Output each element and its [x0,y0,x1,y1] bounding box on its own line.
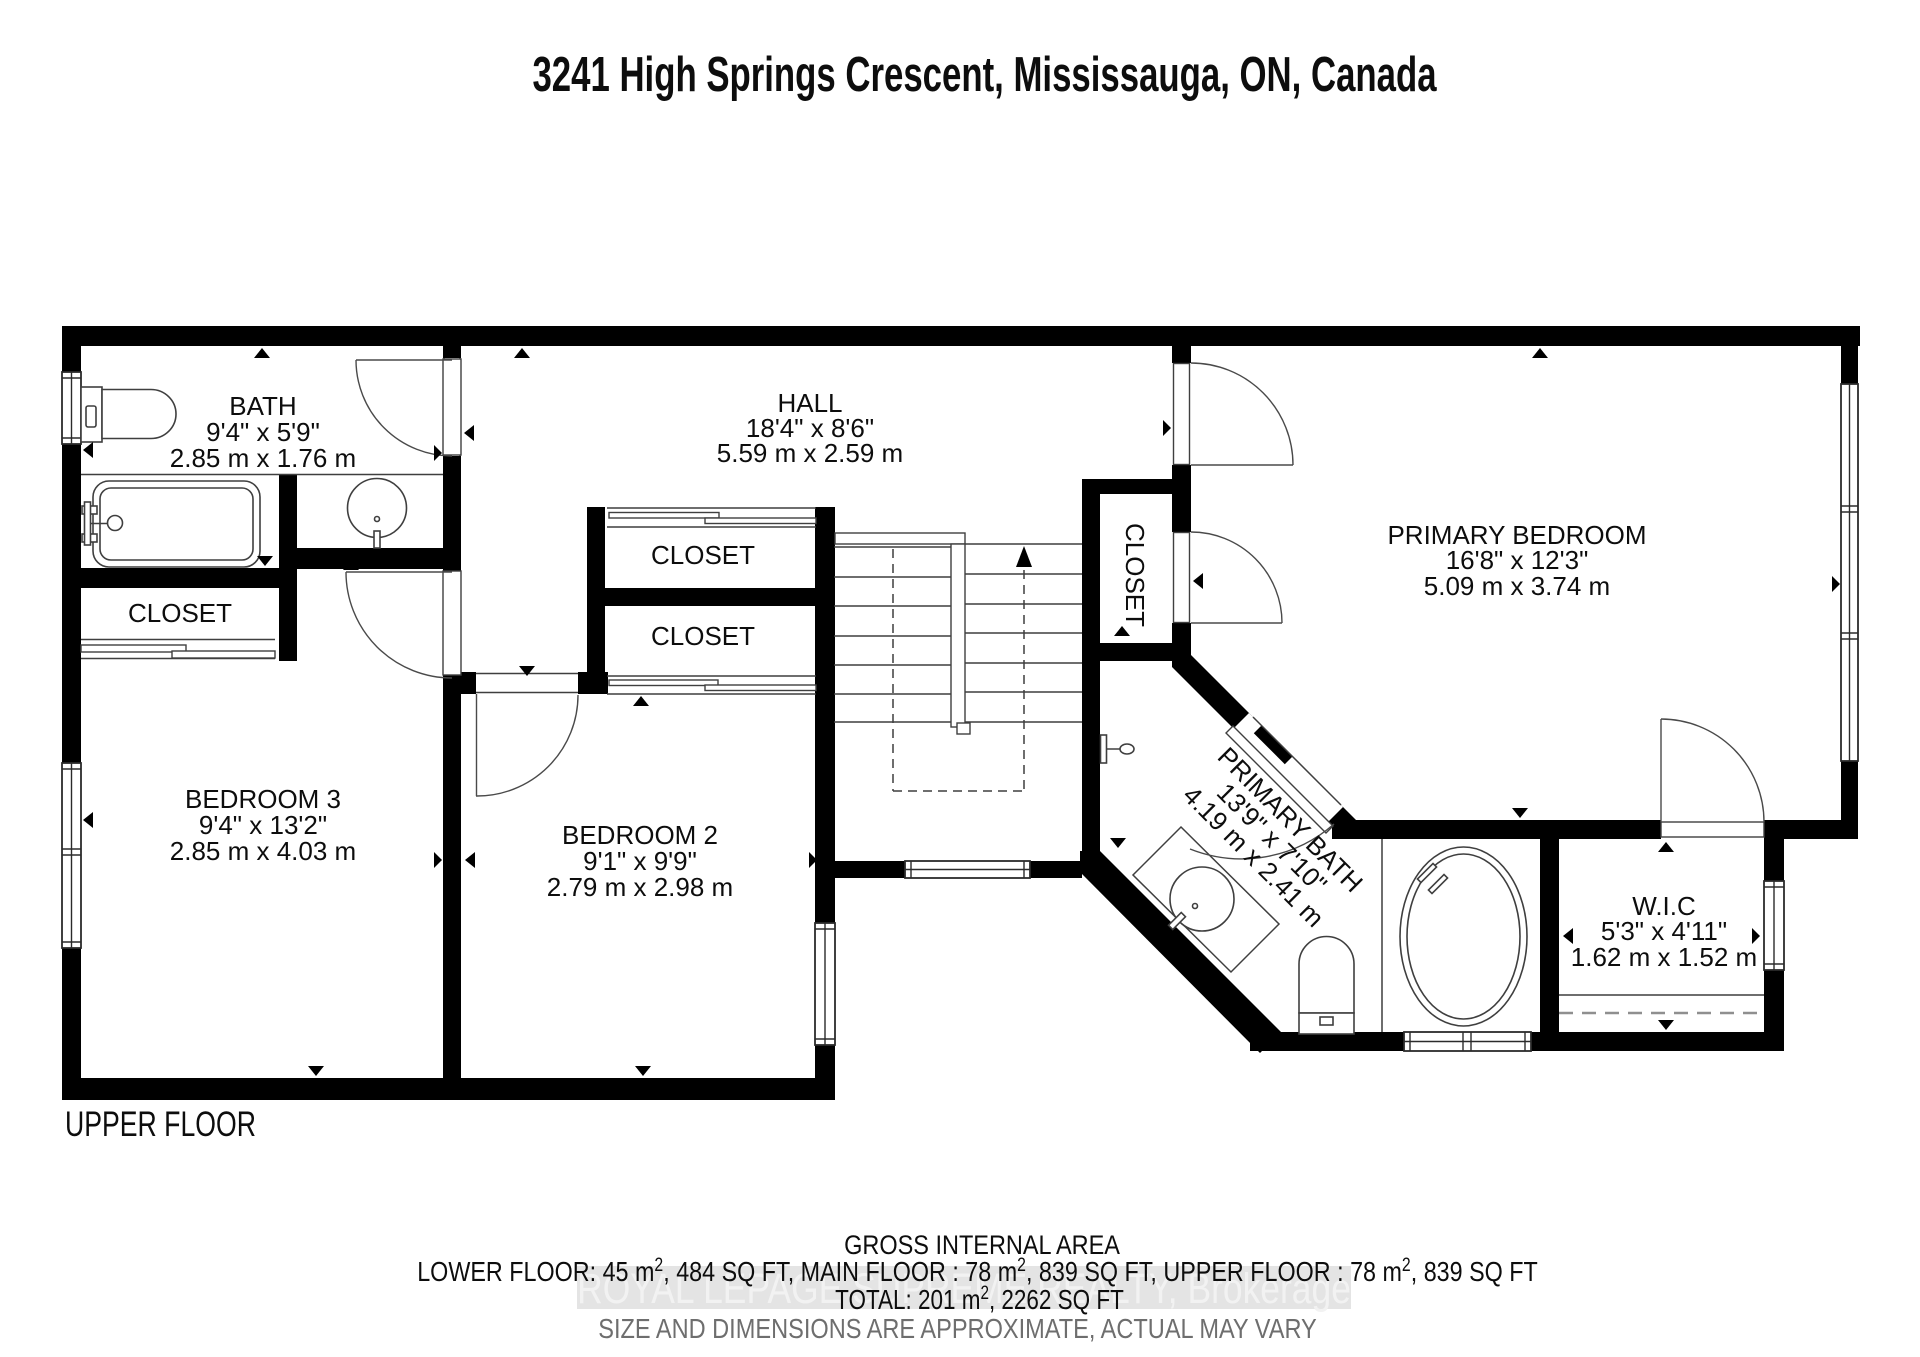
svg-text:GROSS INTERNAL AREA: GROSS INTERNAL AREA [844,1231,1120,1261]
svg-text:TOTAL: 201 m2, 2262 SQ FT: TOTAL: 201 m2, 2262 SQ FT [835,1281,1124,1315]
svg-text:2.85 m x 1.76 m: 2.85 m x 1.76 m [170,443,356,473]
svg-text:CLOSET: CLOSET [651,540,755,570]
svg-text:1.62 m x 1.52 m: 1.62 m x 1.52 m [1571,942,1757,972]
svg-text:3241 High Springs Crescent, Mi: 3241 High Springs Crescent, Mississauga,… [532,48,1436,102]
svg-text:SIZE AND DIMENSIONS ARE APPROX: SIZE AND DIMENSIONS ARE APPROXIMATE, ACT… [598,1314,1317,1344]
svg-text:5.59 m x 2.59 m: 5.59 m x 2.59 m [717,438,903,468]
svg-text:2.79 m x 2.98 m: 2.79 m x 2.98 m [547,872,733,902]
svg-text:5.09 m x 3.74 m: 5.09 m x 3.74 m [1424,571,1610,601]
svg-text:CLOSET: CLOSET [651,621,755,651]
svg-text:UPPER FLOOR: UPPER FLOOR [65,1104,256,1143]
svg-text:CLOSET: CLOSET [1120,523,1150,627]
svg-text:LOWER FLOOR: 45 m2, 484 SQ FT,: LOWER FLOOR: 45 m2, 484 SQ FT, MAIN FLOO… [417,1254,1538,1288]
svg-text:2.85 m x 4.03 m: 2.85 m x 4.03 m [170,836,356,866]
svg-text:CLOSET: CLOSET [128,598,232,628]
